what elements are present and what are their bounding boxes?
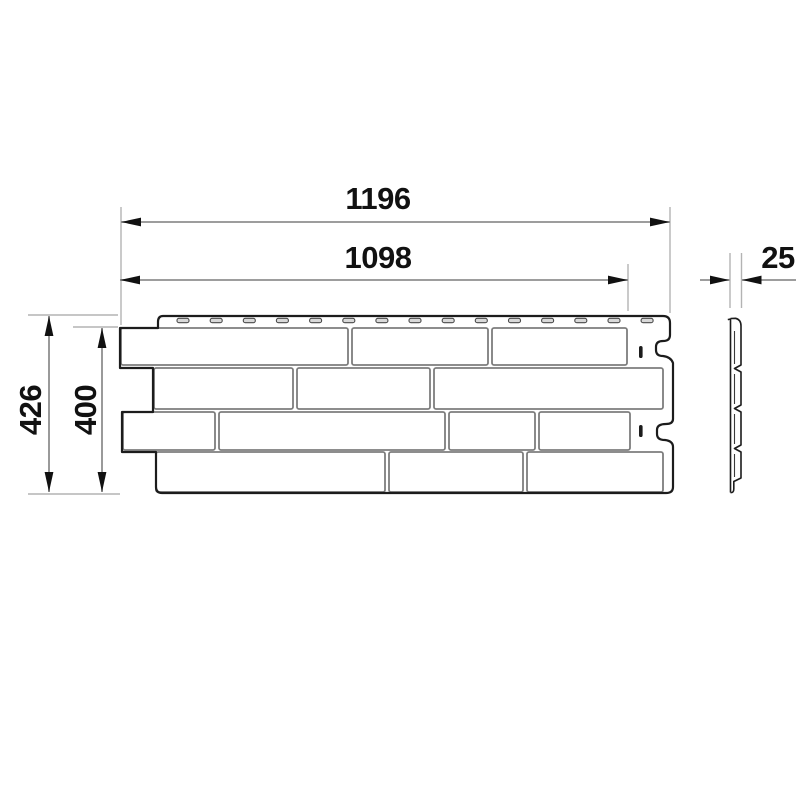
arrowhead <box>710 276 730 285</box>
nail-slot <box>243 318 255 322</box>
nail-slot <box>442 318 454 322</box>
nail-slot <box>542 318 554 322</box>
nail-slot <box>509 318 521 322</box>
arrowhead <box>742 276 762 285</box>
brick-seam <box>352 328 488 365</box>
brick-seam <box>434 368 663 409</box>
brick-seam <box>156 452 385 492</box>
dimension-useful-height: 400 <box>68 327 118 492</box>
brick-seam <box>219 412 445 450</box>
brick-seam <box>492 328 627 365</box>
side-profile-view <box>728 318 741 492</box>
front-view <box>120 316 673 493</box>
arrowhead <box>98 328 107 348</box>
brick-seam <box>527 452 663 492</box>
nail-slot <box>276 318 288 322</box>
nail-slot <box>177 318 189 322</box>
arrowhead <box>608 276 628 285</box>
drawing-page: 1196 1098 25 426 400 <box>0 0 800 800</box>
brick-seams <box>121 328 663 492</box>
nail-slot <box>641 318 653 322</box>
arrowhead <box>98 472 107 492</box>
arrowhead <box>650 218 670 227</box>
arrowhead <box>121 218 141 227</box>
dimension-label-thickness: 25 <box>761 240 795 275</box>
nail-slot <box>310 318 322 322</box>
nail-slot <box>575 318 587 322</box>
dimension-label-useful-height: 400 <box>68 385 103 435</box>
arrowhead <box>45 316 54 336</box>
brick-seam <box>449 412 535 450</box>
nail-slots <box>177 318 653 322</box>
dimension-thickness: 25 <box>700 240 796 308</box>
nail-slot <box>210 318 222 322</box>
nail-slot <box>608 318 620 322</box>
drawing-canvas: 1196 1098 25 426 400 <box>0 0 800 800</box>
edge-tick-mark <box>639 425 643 437</box>
brick-seam <box>154 368 293 409</box>
dimension-label-total-width: 1196 <box>345 181 411 216</box>
edge-tick-mark <box>639 346 643 358</box>
nail-slot <box>343 318 355 322</box>
nail-slot <box>475 318 487 322</box>
dimension-label-useful-width: 1098 <box>345 240 412 275</box>
dimension-label-total-height: 426 <box>13 385 48 435</box>
brick-seam <box>121 328 348 365</box>
brick-seam <box>389 452 523 492</box>
brick-seam <box>123 412 215 450</box>
brick-seam <box>539 412 630 450</box>
dimension-useful-width: 1098 <box>120 240 628 311</box>
arrowhead <box>45 472 54 492</box>
nail-slot <box>376 318 388 322</box>
brick-seam <box>297 368 430 409</box>
arrowhead <box>120 276 140 285</box>
nail-slot <box>409 318 421 322</box>
